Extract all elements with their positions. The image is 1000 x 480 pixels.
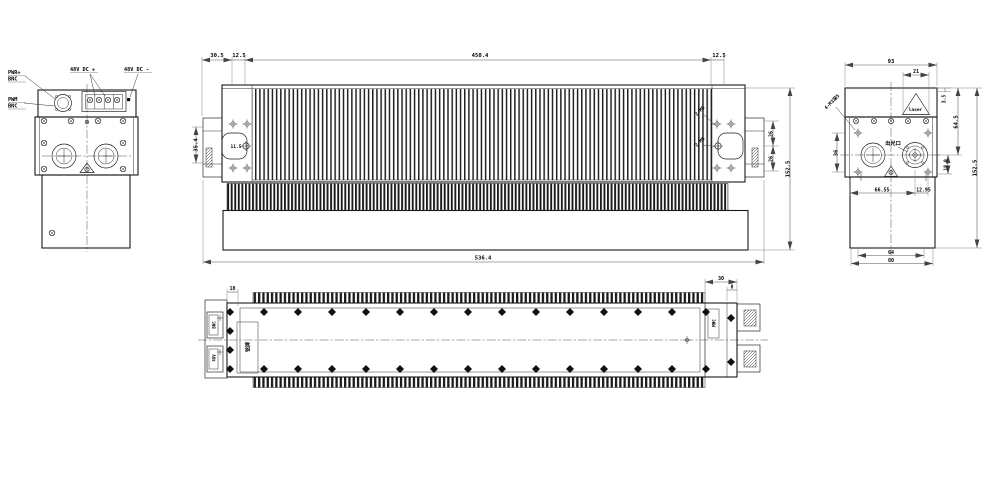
screw-cross-icon bbox=[42, 141, 46, 145]
screw-cross-icon bbox=[96, 119, 100, 123]
mount-diamond-icon bbox=[727, 358, 735, 366]
heatsink-fins-bottom bbox=[227, 184, 728, 211]
hole-cross-icon bbox=[229, 164, 238, 173]
dim-80: 80 bbox=[888, 258, 894, 264]
screw-cross-icon bbox=[88, 98, 92, 102]
screw-cross-icon bbox=[924, 119, 928, 123]
dim-30-5: 30.5 bbox=[210, 53, 223, 59]
mount-diamond-icon bbox=[566, 308, 574, 316]
hole-cross-icon bbox=[713, 120, 722, 129]
dim-12-5-right: 12.5 bbox=[712, 53, 725, 59]
hole-cross-icon bbox=[713, 164, 722, 173]
dim-12-5-left: 12.5 bbox=[232, 53, 245, 59]
mount-diamond-icon bbox=[600, 308, 608, 316]
fin-edge-bottom bbox=[253, 377, 705, 388]
hole-cross-icon bbox=[229, 120, 238, 129]
dc-positive-label: 48V DC + bbox=[70, 67, 95, 73]
port-label-1-line2: BNC bbox=[8, 77, 17, 83]
dim-66-55: 66.55 bbox=[874, 188, 889, 194]
mount-diamond-icon bbox=[294, 308, 302, 316]
mount-diamond-icon bbox=[702, 365, 710, 373]
mount-diamond-icon bbox=[464, 308, 472, 316]
small-hole-icon bbox=[921, 161, 923, 163]
mount-diamond-icon bbox=[328, 308, 336, 316]
small-hole-icon bbox=[921, 146, 923, 148]
port-1-label: BNC bbox=[212, 321, 217, 329]
right-ear-slot-top bbox=[744, 310, 756, 326]
dim-10: 10 bbox=[230, 286, 236, 292]
screw-cross-icon bbox=[69, 119, 73, 123]
dim-26-lower: 26 bbox=[769, 156, 775, 162]
dc-negative-label: 48V DC - bbox=[124, 67, 149, 73]
right-view-dimensions bbox=[832, 62, 982, 266]
port-2-label: 48V bbox=[212, 354, 217, 362]
base-plate bbox=[223, 211, 748, 251]
mount-diamond-icon bbox=[362, 308, 370, 316]
left-ear bbox=[203, 118, 222, 177]
cad-drawing: PWR+ BNC PWM BNC 48V DC + 48V DC - bbox=[0, 0, 1000, 480]
right-ear-slot bbox=[752, 148, 758, 167]
screw-cross-icon bbox=[121, 141, 125, 145]
right-ear bbox=[745, 118, 764, 177]
screw-cross-icon bbox=[106, 98, 110, 102]
plan-view: 10 30 8 铭牌 MHC BNC 48V bbox=[198, 276, 768, 388]
dim-35-4: 35.4 bbox=[194, 138, 200, 152]
hole-cross-icon bbox=[727, 120, 736, 129]
dim-93: 93 bbox=[888, 59, 895, 65]
bnc-connector bbox=[55, 95, 72, 112]
mount-diamond-icon bbox=[727, 314, 735, 322]
terminal-dividers bbox=[95, 95, 114, 110]
laser-mark: laser bbox=[909, 107, 923, 113]
dim-8: 8 bbox=[731, 285, 734, 291]
screw-cross-icon bbox=[97, 98, 101, 102]
connector-box-label: MHC bbox=[712, 319, 717, 327]
small-hole-icon bbox=[906, 161, 908, 163]
screw-cross-icon bbox=[42, 167, 46, 171]
dim-11-5: 11.5 bbox=[230, 144, 241, 150]
hole-callout: 4-M3深5 bbox=[823, 93, 842, 112]
dim-64-5: 64.5 bbox=[954, 115, 960, 128]
mount-diamond-icon bbox=[498, 308, 506, 316]
dim-152-5-right: 152.5 bbox=[973, 160, 979, 177]
left-end-view: PWR+ BNC PWM BNC 48V DC + 48V DC - bbox=[8, 67, 152, 252]
bnc-connector-inner bbox=[58, 98, 69, 109]
dim-30: 30 bbox=[718, 276, 724, 282]
dim-26-upper: 26 bbox=[769, 131, 775, 137]
screw-cross-icon bbox=[115, 98, 119, 102]
screw-cross-icon bbox=[121, 119, 125, 123]
center-mark-icon bbox=[683, 336, 691, 344]
mount-diamond-icon bbox=[532, 308, 540, 316]
dim-36: 36 bbox=[834, 149, 840, 156]
hole-cross-icon bbox=[243, 120, 252, 129]
small-hole-icon bbox=[906, 146, 908, 148]
dim-21: 21 bbox=[913, 69, 919, 75]
center-mark-icon bbox=[99, 149, 113, 163]
screw-cross-icon bbox=[906, 119, 910, 123]
dc-minus-terminal bbox=[127, 98, 130, 101]
body-walls bbox=[40, 117, 134, 175]
hole-cross-icon bbox=[243, 164, 252, 173]
drawing-sheet: PWR+ BNC PWM BNC 48V DC + 48V DC - bbox=[0, 0, 1000, 480]
screw-cross-icon bbox=[872, 119, 876, 123]
hole-cross-icon bbox=[924, 168, 933, 177]
light-port-label: 出光口 bbox=[885, 139, 901, 147]
screw-cross-icon bbox=[121, 167, 125, 171]
center-mark-icon bbox=[908, 148, 922, 162]
dim-12-95: 12.95 bbox=[916, 188, 931, 194]
screw-cross-icon bbox=[50, 231, 54, 235]
right-end-view: 93 21 laser 4-M3深5 3.5 64.5 36 出光口 18.9 … bbox=[823, 59, 982, 266]
dim-450-4: 450.4 bbox=[472, 53, 489, 59]
mount-diamond-icon bbox=[260, 308, 268, 316]
right-ear-slot-bottom bbox=[744, 351, 756, 367]
lower-extension bbox=[42, 175, 130, 248]
left-ear-slot bbox=[206, 148, 212, 167]
nameplate-label: 铭牌 bbox=[245, 342, 252, 352]
port-label-2-line1: PWM bbox=[8, 97, 17, 103]
dim-536-4: 536.4 bbox=[475, 256, 492, 262]
mount-diamond-icon bbox=[668, 308, 676, 316]
hole-cross-icon bbox=[924, 129, 933, 138]
dim-3-5: 3.5 bbox=[942, 95, 948, 104]
fin-edge-top bbox=[253, 293, 705, 304]
dim-18-9: 18.9 bbox=[944, 159, 950, 171]
center-mark-icon bbox=[57, 149, 71, 163]
front-view: 30.5 12.5 450.4 12.5 35.4 11.5 2-M5 2-M5… bbox=[192, 53, 795, 264]
hole-cross-icon bbox=[727, 164, 736, 173]
screw-cross-icon bbox=[854, 119, 858, 123]
mount-diamond-icon bbox=[396, 308, 404, 316]
screw-cross-icon bbox=[42, 119, 46, 123]
mount-diamond-icon bbox=[430, 308, 438, 316]
port-label-2-line2: BNC bbox=[8, 104, 17, 110]
dim-152-5-front: 152.5 bbox=[786, 161, 792, 178]
dim-64: 64 bbox=[888, 250, 894, 256]
center-mark-icon bbox=[866, 148, 880, 162]
port-label-1-line1: PWR+ bbox=[8, 70, 21, 76]
heatsink-fins-top bbox=[252, 89, 712, 180]
mount-diamond-icon bbox=[634, 308, 642, 316]
